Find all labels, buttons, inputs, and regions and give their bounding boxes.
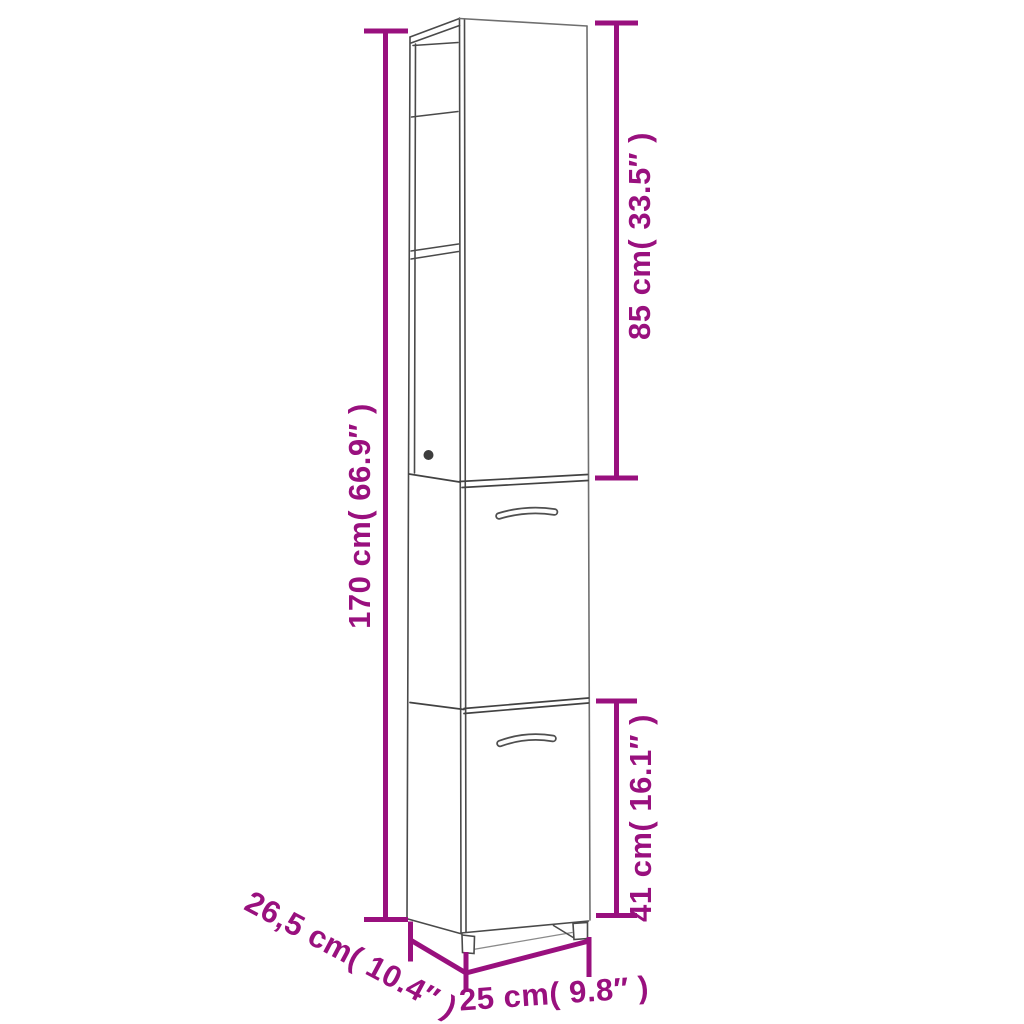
dimension-label-lower-height: 41 cm( 16.1″ ) <box>623 714 659 922</box>
dimension-line-depth <box>411 922 467 974</box>
door-handle-upper-icon <box>499 510 555 516</box>
dimension-label-upper-height: 85 cm( 33.5″ ) <box>622 132 658 340</box>
dimension-lines <box>364 23 638 992</box>
door-gap-upper <box>409 474 588 488</box>
cabinet-base <box>408 919 589 950</box>
door-handle-lower-icon <box>500 737 553 743</box>
dimension-diagram: 170 cm( 66.9″ ) 85 cm( 33.5″ ) 41 cm( 16… <box>0 0 1024 1024</box>
door-gap-lower <box>410 698 589 714</box>
shelf-lines <box>411 112 459 260</box>
lock-pin-dot <box>424 450 434 460</box>
cabinet-line-drawing <box>0 0 1024 1024</box>
dimension-label-total-height: 170 cm( 66.9″ ) <box>342 403 378 629</box>
